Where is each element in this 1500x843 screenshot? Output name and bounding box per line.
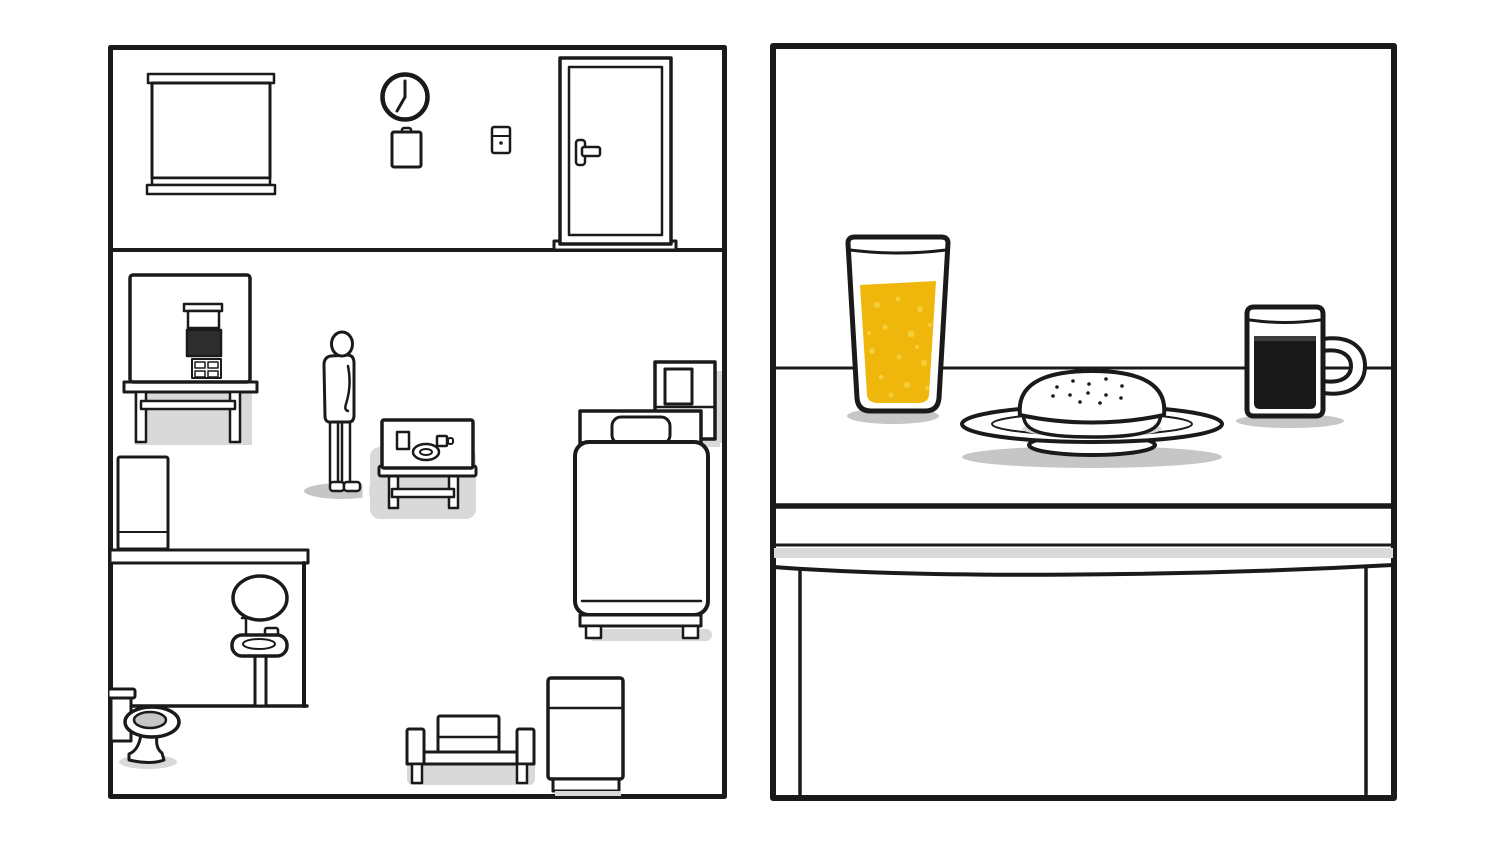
mini-mug <box>437 436 447 446</box>
mini-glass <box>397 432 409 449</box>
machine-buttons[interactable] <box>192 359 221 378</box>
box-on-bench[interactable] <box>438 716 499 754</box>
mirror[interactable] <box>233 576 287 620</box>
game-stage <box>0 0 1500 843</box>
pillow[interactable] <box>612 417 670 444</box>
photo-frame[interactable] <box>665 369 692 404</box>
bun-top[interactable] <box>1020 371 1165 423</box>
wall-clock[interactable] <box>383 75 428 120</box>
room-overview-panel <box>108 45 727 799</box>
food-machine[interactable] <box>124 275 257 445</box>
machine-screen <box>187 330 221 356</box>
bed[interactable] <box>575 411 712 641</box>
person-foot <box>330 482 344 491</box>
coffee-surface <box>1254 336 1316 341</box>
toilet-water <box>134 712 166 728</box>
bed-foot <box>683 626 698 638</box>
juice-glass[interactable] <box>847 237 948 424</box>
door[interactable] <box>554 58 676 250</box>
bedside-cabinet[interactable] <box>548 678 623 796</box>
blanket[interactable] <box>575 442 708 615</box>
person-head <box>332 332 353 356</box>
clipboard[interactable] <box>392 128 421 167</box>
person-foot <box>344 482 360 491</box>
bed-foot <box>586 626 601 638</box>
table-underside-shade <box>774 548 1393 558</box>
fridge-box[interactable] <box>118 457 168 549</box>
cup-slot <box>188 311 219 328</box>
window-blind[interactable] <box>147 74 275 194</box>
table-closeup-panel <box>770 43 1397 801</box>
light-switch[interactable] <box>492 127 510 153</box>
coffee <box>1254 336 1316 409</box>
sink-pedestal <box>255 656 266 706</box>
breakfast-side-table[interactable] <box>366 420 480 523</box>
